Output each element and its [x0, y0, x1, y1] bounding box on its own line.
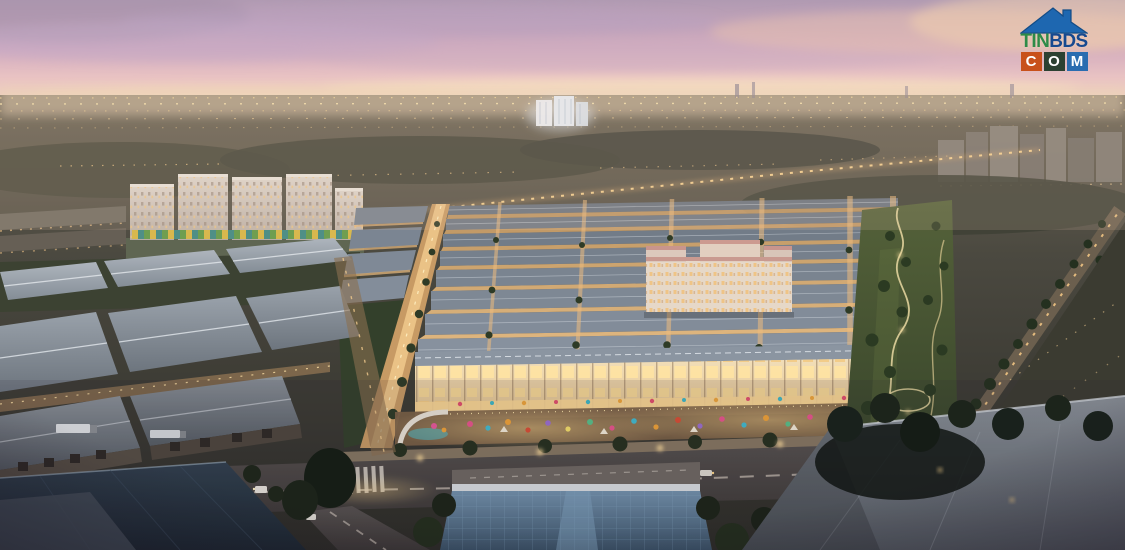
logo-tile-c: C — [1021, 52, 1042, 71]
site-logo: TINBDS C O M — [1009, 6, 1099, 71]
house-icon — [1020, 6, 1088, 34]
scene-canvas — [0, 0, 1125, 550]
vignette — [0, 0, 1125, 550]
logo-tile-m: M — [1067, 52, 1088, 71]
logo-text-line1: TINBDS — [1020, 33, 1087, 50]
logo-tin-text: TIN — [1020, 31, 1049, 52]
logo-text-line2: C O M — [1021, 52, 1088, 71]
aerial-render-image: TINBDS C O M — [0, 0, 1125, 550]
logo-bds-text: BDS — [1049, 31, 1087, 52]
logo-tile-o: O — [1044, 52, 1065, 71]
